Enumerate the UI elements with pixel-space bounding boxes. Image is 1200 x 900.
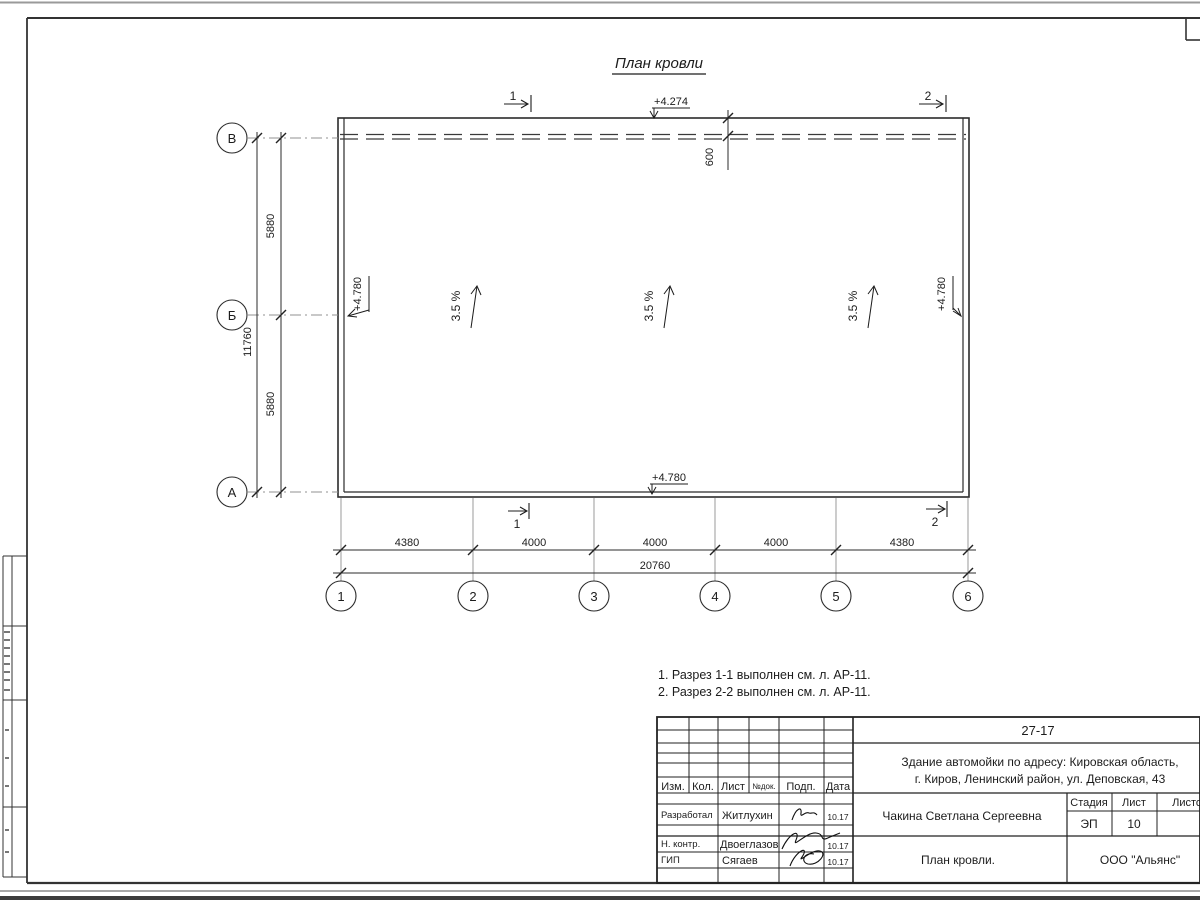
section-label-1-bottom: 1 <box>514 517 521 531</box>
page-title: План кровли <box>615 55 704 72</box>
axis-circle-4: 4 <box>711 589 718 604</box>
tb-stage-value: ЭП <box>1080 817 1097 831</box>
dim-label-bottom-1: 4380 <box>395 537 419 549</box>
section-mark-1-top: 1 <box>504 89 531 112</box>
side-stamp-strip <box>3 556 27 877</box>
tb-project-line1: Здание автомойки по адресу: Кировская об… <box>901 755 1178 769</box>
axis-circle-3: 3 <box>590 589 597 604</box>
axis-circle-b: Б <box>228 308 237 323</box>
tb-sheet-title: План кровли. <box>921 853 995 867</box>
bottom-dimensions: 4380 4000 4000 4000 4380 20760 <box>333 537 976 578</box>
note-2: 2. Разрез 2-2 выполнен см. л. АР-11. <box>658 685 871 699</box>
axis-circle-1: 1 <box>337 589 344 604</box>
dim-label-left-1: 5880 <box>265 214 277 238</box>
elevation-bottom: +4.780 <box>648 472 688 494</box>
hidden-wall-dashed-line <box>340 135 966 140</box>
tb-project-line2: г. Киров, Ленинский район, ул. Деповская… <box>915 772 1166 786</box>
tb-header-list: Лист <box>721 781 745 793</box>
tb-date-2: 10.17 <box>827 841 849 851</box>
tb-doc-number: 27-17 <box>1021 723 1054 738</box>
section-mark-2-top: 2 <box>919 89 946 112</box>
dim-label-bottom-3: 4000 <box>643 537 667 549</box>
axis-bubbles-bottom <box>326 581 983 611</box>
slope-label-2: 3.5 % <box>642 290 656 321</box>
axis-circle-6: 6 <box>964 589 971 604</box>
elevation-value-left: +4.780 <box>352 277 364 311</box>
drawing-title: План кровли <box>612 55 706 74</box>
elevation-value-top: +4.274 <box>654 96 688 108</box>
notes: 1. Разрез 1-1 выполнен см. л. АР-11. 2. … <box>658 668 871 699</box>
tb-header-izm: Изм. <box>661 781 685 793</box>
axis-labels-bottom: 1 2 3 4 5 6 <box>337 589 971 604</box>
slope-label-3: 3.5 % <box>846 290 860 321</box>
elevation-top: +4.274 <box>650 96 690 118</box>
parapet-offset-dim: 600 <box>704 110 733 170</box>
tb-role-2: Н. контр. <box>661 839 700 850</box>
elevation-left: +4.780 <box>348 276 369 317</box>
slope-label-1: 3.5 % <box>449 290 463 321</box>
section-mark-1-bottom: 1 <box>508 503 529 531</box>
dim-label-bottom-total: 20760 <box>640 560 671 572</box>
section-label-2-bottom: 2 <box>932 515 939 529</box>
slope-mark-1: 3.5 % <box>449 286 481 328</box>
tb-date-1: 10.17 <box>827 812 849 822</box>
tb-header-ndok: №док. <box>752 782 775 791</box>
tb-header-stage: Стадия <box>1070 797 1108 809</box>
tb-company: ООО "Альянс" <box>1100 853 1180 867</box>
axis-circle-2: 2 <box>469 589 476 604</box>
axis-labels-left: В Б А <box>228 131 237 500</box>
tb-header-sheet: Лист <box>1122 797 1146 809</box>
tb-header-data: Дата <box>826 781 851 793</box>
slope-mark-3: 3.5 % <box>846 286 878 328</box>
tb-header-kol: Кол. <box>692 781 714 793</box>
tb-client: Чакина Светлана Сергеевна <box>882 809 1041 823</box>
tb-sheet-value: 10 <box>1127 817 1141 831</box>
title-block: Изм. Кол. Лист №док. Подп. Дата Разработ… <box>657 717 1200 883</box>
tb-name-3: Сягаев <box>722 855 758 867</box>
dim-label-left-2: 5880 <box>265 392 277 416</box>
dim-label-bottom-2: 4000 <box>522 537 546 549</box>
tb-header-sheets: Листов <box>1172 797 1200 809</box>
tb-name-1: Житлухин <box>722 810 773 822</box>
tb-name-2: Двоеглазов <box>720 839 779 851</box>
tb-header-podp: Подп. <box>786 781 815 793</box>
drawing-sheet: План кровли <box>0 0 1200 900</box>
section-label-2-top: 2 <box>925 89 932 103</box>
note-1: 1. Разрез 1-1 выполнен см. л. АР-11. <box>658 668 871 682</box>
dim-label-left-total: 11760 <box>242 327 254 357</box>
elevation-right: +4.780 <box>936 276 961 316</box>
tb-date-3: 10.17 <box>827 857 849 867</box>
tb-role-1: Разработал <box>661 810 713 821</box>
dim-label-bottom-5: 4380 <box>890 537 914 549</box>
axis-circle-v: В <box>228 131 237 146</box>
axis-circle-5: 5 <box>832 589 839 604</box>
section-label-1-top: 1 <box>510 89 517 103</box>
dim-label-600: 600 <box>704 148 716 166</box>
slope-mark-2: 3.5 % <box>642 286 674 328</box>
side-stamp-text-illegible <box>4 632 10 852</box>
elevation-value-bottom: +4.780 <box>652 472 686 484</box>
tb-role-3: ГИП <box>661 855 680 866</box>
extension-lines <box>248 138 968 581</box>
axis-circle-a: А <box>228 485 237 500</box>
signature-1 <box>792 809 817 820</box>
signature-3 <box>790 850 823 866</box>
elevation-value-right: +4.780 <box>936 277 948 311</box>
section-mark-2-bottom: 2 <box>926 501 947 529</box>
dim-label-bottom-4: 4000 <box>764 537 788 549</box>
